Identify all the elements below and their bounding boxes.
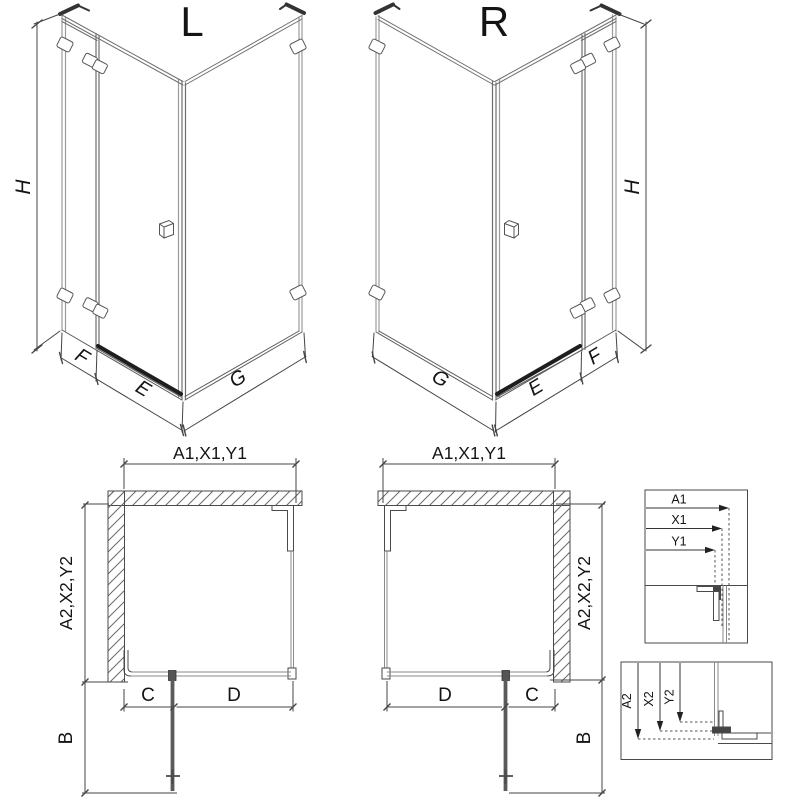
dim-label-a2x2y2-left: A2,X2,Y2 [56, 556, 76, 630]
door-open-handle [166, 770, 180, 785]
view-label-l: L [180, 0, 203, 45]
frame-edge-lines [96, 34, 186, 401]
top-wall-bracket-right [280, 5, 304, 14]
dim-ef-line [496, 357, 618, 432]
dim-h-extensions [34, 14, 60, 350]
dim-label-a2x2y2-right: A2,X2,Y2 [574, 556, 594, 630]
side-panel-glass [385, 551, 388, 676]
bottom-rail-profile-section [713, 662, 772, 744]
frame-edge-lines [493, 34, 586, 401]
top-wall-bracket-right [591, 6, 620, 15]
dim-label-d-left: D [227, 685, 241, 706]
dim-label-d-right: D [438, 685, 452, 706]
dim-label-h-right: H [621, 179, 644, 195]
side-panel-wall-profile [272, 506, 294, 552]
side-panel-glass [291, 551, 294, 676]
dim-g-line [184, 357, 306, 432]
detail-label-a2: A2 [620, 693, 634, 708]
door-handle-knob [160, 221, 174, 239]
detail-label-y2: Y2 [663, 689, 677, 704]
detail-box-a1x1y1: A1 X1 Y1 [645, 490, 748, 643]
top-wall-bracket-left [60, 6, 89, 15]
wall-top-hatched [378, 491, 570, 506]
door-open-handle [499, 770, 513, 785]
view-label-r: R [479, 0, 509, 45]
detail-label-x2: X2 [642, 691, 656, 706]
side-panel-wall-profile [385, 506, 407, 552]
dim-label-a1x1y1-right: A1,X1,Y1 [432, 443, 506, 463]
dim-label-g-left: G [226, 365, 251, 392]
dim-label-c-right: C [525, 685, 539, 706]
magnet-profile [382, 668, 390, 679]
detail-label-a1: A1 [671, 493, 686, 507]
dim-label-b-right: B [574, 732, 595, 745]
top-wall-bracket-left [376, 5, 400, 14]
shower-enclosure-technical-diagram: L H F E G [0, 0, 800, 800]
dim-label-e-right: E [525, 375, 548, 401]
door-handle-knob [505, 221, 519, 239]
wall-top-hatched [108, 491, 302, 506]
reference-dashed-lines [638, 722, 714, 739]
detail-box-border [621, 662, 772, 760]
dim-label-h-left: H [12, 179, 35, 195]
detail-label-x1: X1 [671, 513, 686, 527]
door-hinges [82, 53, 109, 319]
dim-label-g-right: G [428, 365, 453, 392]
plan-view-right: A1,X1,Y1 A2,X2,Y2 D C B [378, 443, 606, 797]
arrowheads [635, 712, 683, 739]
detail-box-border [645, 490, 748, 643]
dim-label-f-right: F [584, 343, 607, 369]
detail-box-a2x2y2: A2 X2 Y2 [620, 662, 772, 760]
dimension-lines-right-plan [380, 458, 606, 797]
dim-label-b-left: B [56, 732, 77, 745]
magnet-profile [288, 668, 296, 679]
iso-view-right: R H G E F [368, 0, 651, 436]
front-glass [387, 672, 547, 676]
wall-clips [368, 36, 620, 303]
plan-view-left: A1,X1,Y1 A2,X2,Y2 C D B [56, 443, 302, 797]
front-glass [131, 672, 291, 676]
door-pivot-block [169, 671, 177, 681]
dim-fe-line [61, 358, 183, 431]
door-pivot-block [502, 671, 510, 681]
dim-label-c-left: C [141, 685, 155, 706]
wall-left-hatched [108, 491, 125, 682]
wall-right-hatched [554, 491, 571, 682]
dim-g-line [372, 357, 494, 432]
drawing-canvas: L H F E G [0, 0, 800, 800]
detail-label-y1: Y1 [671, 535, 686, 549]
dim-label-a1x1y1-left: A1,X1,Y1 [173, 443, 247, 463]
door-hinges [569, 53, 596, 319]
iso-view-left: L H F E G [12, 0, 307, 436]
